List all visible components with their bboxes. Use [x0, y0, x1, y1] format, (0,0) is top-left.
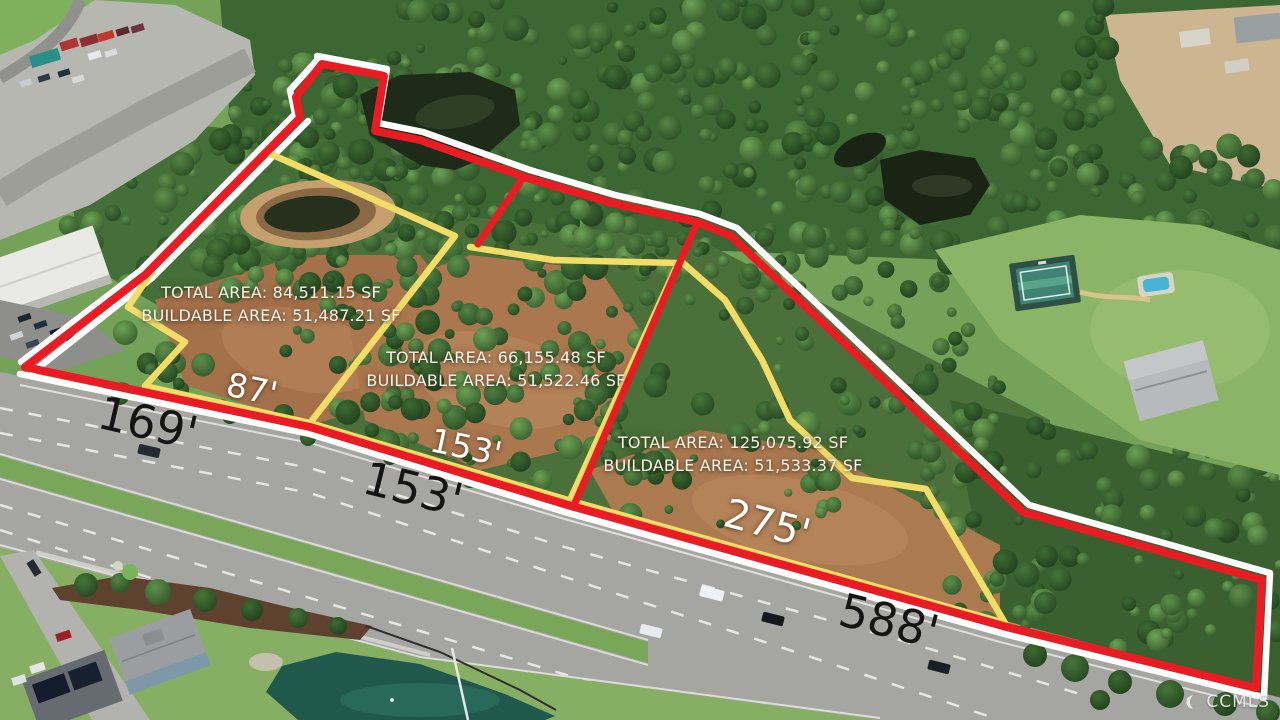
aerial-scene	[0, 0, 1280, 720]
sport-court	[1009, 255, 1081, 312]
aerial-parcel-photo: TOTAL AREA: 84,511.15 SF BUILDABLE AREA:…	[0, 0, 1280, 720]
